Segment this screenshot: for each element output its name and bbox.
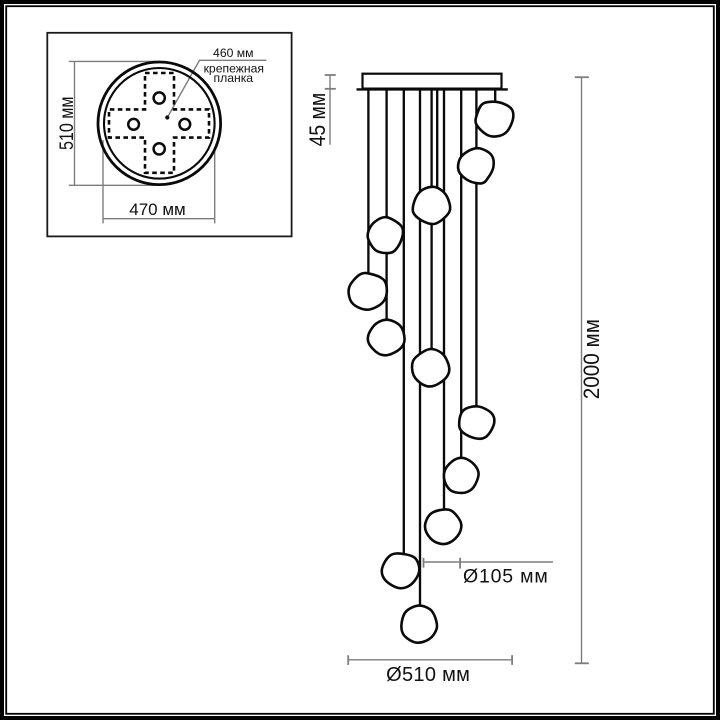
- svg-text:Ø510 мм: Ø510 мм: [386, 664, 470, 686]
- svg-text:470 мм: 470 мм: [129, 200, 185, 219]
- svg-text:планка: планка: [213, 71, 253, 85]
- svg-text:460 мм: 460 мм: [213, 46, 253, 60]
- svg-text:45 мм: 45 мм: [306, 93, 330, 147]
- svg-text:510 мм: 510 мм: [56, 97, 78, 151]
- svg-text:2000 мм: 2000 мм: [578, 319, 604, 399]
- svg-text:Ø105 мм: Ø105 мм: [463, 566, 549, 588]
